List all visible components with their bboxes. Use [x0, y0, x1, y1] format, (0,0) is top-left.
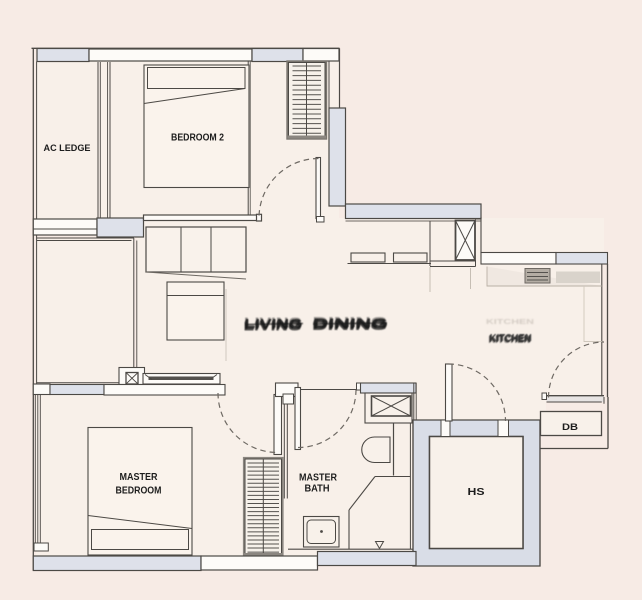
svg-text:BEDROOM: BEDROOM [116, 486, 162, 497]
svg-text:LIVING: LIVING [244, 315, 302, 329]
svg-text:KITCHEN: KITCHEN [488, 334, 530, 346]
svg-text:MASTER: MASTER [120, 472, 159, 483]
svg-text:DINING: DINING [313, 314, 388, 328]
svg-text:BATH: BATH [305, 484, 330, 495]
svg-text:HS: HS [468, 487, 485, 498]
svg-text:KITCHEN: KITCHEN [486, 317, 534, 326]
svg-text:AC LEDGE: AC LEDGE [44, 143, 91, 154]
svg-text:MASTER: MASTER [299, 473, 338, 484]
svg-text:DB: DB [562, 422, 579, 432]
svg-text:BEDROOM 2: BEDROOM 2 [171, 133, 224, 144]
